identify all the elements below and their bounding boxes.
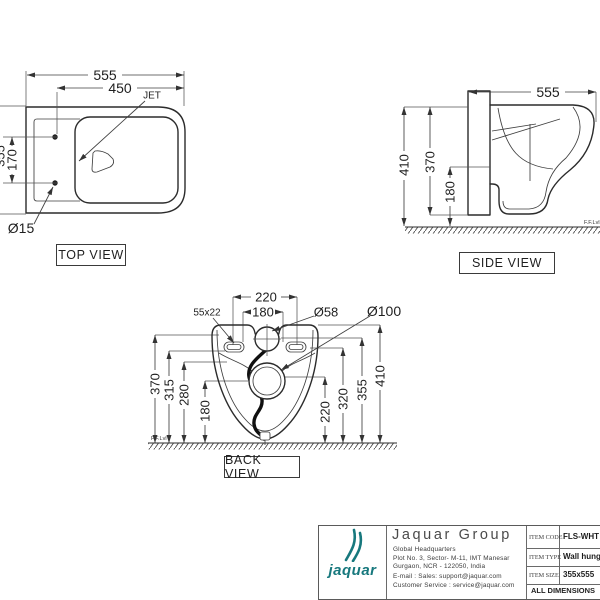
dimensions-note: ALL DIMENSIONS (531, 586, 595, 595)
company-name: Jaquar Group (392, 527, 512, 543)
side-view-inner-front (503, 107, 580, 209)
side-view-label: SIDE VIEW (459, 252, 555, 274)
back-view-label: BACK VIEW (224, 456, 300, 478)
address-line-2: Plot No. 3, Sector- M-11, IMT Manesar (393, 555, 510, 562)
item-code-value: FLS-WHT (563, 532, 599, 541)
item-code-label: ITEM CODE (529, 534, 559, 541)
item-type-label: ITEM TYPE (529, 554, 559, 561)
top-dim-hole-dia: Ø15 (8, 220, 35, 236)
back-dim-180: 180 (198, 400, 213, 422)
back-floor-label: F.F.Lvl (151, 436, 167, 442)
item-size-value: 355x555 (563, 570, 594, 579)
address-line-1: Global Headquarters (393, 546, 456, 553)
side-view: 555 410 370 180 F.F.Lvl (397, 84, 600, 234)
leader-line (281, 316, 370, 370)
back-slot-size-label: 55x22 (193, 308, 221, 319)
back-dim-220: 220 (318, 401, 333, 423)
back-view: 220 180 55x22 Ø58 Ø100 370 315 280 180 2… (148, 290, 402, 450)
top-dim-hole-width: 450 (108, 80, 132, 96)
item-type-value: Wall hung (563, 552, 600, 561)
side-dim-body-height: 370 (423, 151, 438, 173)
side-dim-height: 410 (397, 154, 412, 176)
top-view-label: TOP VIEW (56, 244, 126, 266)
jaquar-logo-icon (338, 528, 368, 562)
title-block-divider (526, 548, 600, 549)
side-view-rim-line-2 (492, 124, 536, 131)
side-dim-depth: 555 (536, 84, 560, 100)
back-view-bottom-outlet (260, 432, 270, 440)
title-block-divider (526, 584, 600, 585)
back-dim-inner-spacing: 180 (252, 305, 274, 320)
side-view-wall-plate (468, 91, 490, 215)
back-inlet-dia-label: Ø58 (314, 305, 339, 320)
side-dim-outlet-height: 180 (443, 181, 458, 203)
top-dim-depth-clipped: 355 (0, 145, 8, 167)
title-block-divider (526, 526, 527, 599)
title-block-divider (526, 566, 600, 567)
back-dim-355: 355 (355, 379, 370, 401)
top-view-jet-shape (92, 151, 114, 172)
back-view-outlet-circle-outer (249, 363, 285, 399)
leader-line (34, 187, 53, 224)
jaquar-logo-word: jaquar (319, 562, 386, 579)
address-line-4: E-mail : Sales: support@jaquar.com (393, 573, 502, 580)
leader-line (213, 318, 234, 343)
title-block: jaquar Jaquar Group Global Headquarters … (318, 525, 600, 600)
floor-hatch (148, 444, 397, 450)
item-size-label: ITEM SIZE (529, 572, 559, 579)
address-line-5: Customer Service : service@jaquar.com (393, 582, 515, 589)
back-dim-320: 320 (336, 388, 351, 410)
back-dim-280: 280 (177, 384, 192, 406)
drawing-sheet: 555 450 170 355 Ø15 JET 555 (0, 0, 600, 600)
back-dim-370: 370 (148, 373, 163, 395)
floor-hatch (405, 228, 600, 234)
side-view-bowl-curve (498, 108, 553, 169)
address-line-3: Gurgaon, NCR - 122050, India (393, 563, 485, 570)
back-dim-315: 315 (162, 379, 177, 401)
side-floor-label: F.F.Lvl (584, 220, 600, 226)
back-dim-mount-spacing: 220 (255, 290, 277, 305)
back-view-slot-right-inner (289, 345, 303, 350)
top-jet-label: JET (143, 91, 161, 102)
drawing-canvas: 555 450 170 355 Ø15 JET 555 (0, 0, 600, 600)
title-block-divider (386, 526, 387, 599)
top-view: 555 450 170 355 Ø15 JET (0, 67, 185, 236)
back-outlet-dia-label: Ø100 (367, 303, 401, 319)
side-view-body-outline (490, 105, 594, 214)
top-view-bowl (75, 117, 178, 203)
top-view-body-outline (26, 107, 185, 213)
leader-line (79, 101, 145, 161)
leader-line (272, 316, 314, 331)
back-dim-410: 410 (373, 365, 388, 387)
back-view-slot-left-inner (227, 345, 241, 350)
